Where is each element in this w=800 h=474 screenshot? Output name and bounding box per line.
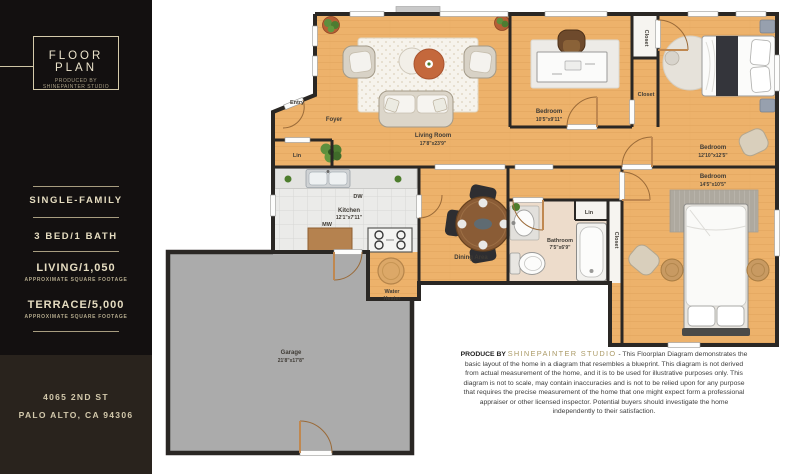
bathtub xyxy=(577,223,607,281)
counter-plant-1 xyxy=(285,176,292,183)
closet-b-label: Closet xyxy=(638,92,655,98)
disclaimer-text: PRODUCE BY SHINEPAINTER STUDIO - This Fl… xyxy=(459,349,749,417)
bedroom2-label: Bedroom xyxy=(700,145,726,151)
floorplan-flyer: Entry Foyer Lin Living Room 17'8"x23'9" … xyxy=(0,0,800,474)
address-line1: 4065 2ND ST xyxy=(0,392,152,402)
pouf-right xyxy=(747,259,769,281)
accent-line xyxy=(0,66,33,67)
property-type: SINGLE-FAMILY xyxy=(0,195,152,206)
table-plant xyxy=(427,62,430,65)
desk xyxy=(537,52,607,82)
brand-badge: FLOOR PLAN PRODUCED BY SHINEPAINTER STUD… xyxy=(33,36,119,90)
nightstand-bottom xyxy=(760,99,775,112)
disclaimer-prefix: PRODUCE BY xyxy=(461,351,508,358)
living-room-dims: 17'8"x23'9" xyxy=(420,141,447,147)
plate-n xyxy=(479,199,488,208)
plate-s xyxy=(479,241,488,250)
kitchen-island xyxy=(308,228,352,252)
sink-faucet xyxy=(512,221,516,225)
badge-title: FLOOR PLAN xyxy=(34,50,118,74)
lin-bath-label: Lin xyxy=(585,210,594,216)
foyer-label: Foyer xyxy=(326,117,343,123)
bedroom1-dims: 10'5"x9'11" xyxy=(536,117,563,123)
centerpiece xyxy=(474,219,492,230)
sofa xyxy=(379,91,453,127)
nightstand-top xyxy=(760,20,775,33)
corner-plant-left xyxy=(323,17,340,34)
water-heater xyxy=(378,258,404,284)
garage-label: Garage xyxy=(281,350,302,356)
divider-4 xyxy=(33,331,119,332)
terrace-sqft-note: APPROXIMATE SQUARE FOOTAGE xyxy=(0,314,152,320)
closet-a-label: Closet xyxy=(643,30,649,47)
living-room-label: Living Room xyxy=(415,133,451,139)
bed-bath: 3 BED/1 BATH xyxy=(0,231,152,242)
bedroom2-dims: 12'10"x12'5" xyxy=(698,153,728,159)
bedroom3-label: Bedroom xyxy=(700,174,726,180)
closet-c-label: Closet xyxy=(613,232,619,249)
divider-3 xyxy=(33,251,119,252)
garage-dims: 21'8"x17'8" xyxy=(278,358,305,364)
disclaimer-brand: SHINEPAINTER STUDIO xyxy=(508,349,617,358)
bedroom3-bed xyxy=(682,204,750,336)
disclaimer-body: - This Floorplan Diagram demonstrates th… xyxy=(463,351,747,415)
kitchen-sink xyxy=(306,170,350,188)
bedroom2-side-table xyxy=(665,51,679,65)
counter-plant-2 xyxy=(395,176,402,183)
office-chair xyxy=(558,30,585,53)
water-heater-label-1: Water xyxy=(384,289,400,295)
address-line2: PALO ALTO, CA 94306 xyxy=(0,410,152,420)
living-sqft: LIVING/1,050 xyxy=(0,262,152,274)
toilet xyxy=(510,253,545,275)
armchair-left xyxy=(343,46,375,78)
microwave-label: MW xyxy=(322,222,333,228)
bathroom-label: Bathroom xyxy=(547,238,573,244)
kitchen-label: Kitchen xyxy=(338,208,360,214)
divider-1 xyxy=(33,186,119,187)
bathroom-dims: 7'5"x6'9" xyxy=(549,245,571,251)
badge-subtitle: PRODUCED BY SHINEPAINTER STUDIO xyxy=(34,78,118,90)
lin-foyer-label: Lin xyxy=(293,153,302,159)
terrace-sqft: TERRACE/5,000 xyxy=(0,299,152,311)
plate-w xyxy=(458,220,467,229)
water-heater-label-2: Heater xyxy=(383,296,401,302)
divider-2 xyxy=(33,217,119,218)
stove xyxy=(368,228,412,252)
kitchen-dims: 12'1"x7'11" xyxy=(336,215,363,221)
bedroom3-dims: 14'5"x10'5" xyxy=(700,182,727,188)
entry-label: Entry xyxy=(290,100,305,106)
dining-area-label: Dining Area xyxy=(454,255,488,261)
corner-plant-right xyxy=(495,16,510,31)
pouf-left xyxy=(661,259,683,281)
bedroom1-label: Bedroom xyxy=(536,109,562,115)
living-sqft-note: APPROXIMATE SQUARE FOOTAGE xyxy=(0,277,152,283)
info-sidebar: FLOOR PLAN PRODUCED BY SHINEPAINTER STUD… xyxy=(0,0,152,474)
bedroom2-bed xyxy=(702,36,775,96)
dishwasher-label: DW xyxy=(353,194,363,200)
armchair-right xyxy=(464,46,496,78)
